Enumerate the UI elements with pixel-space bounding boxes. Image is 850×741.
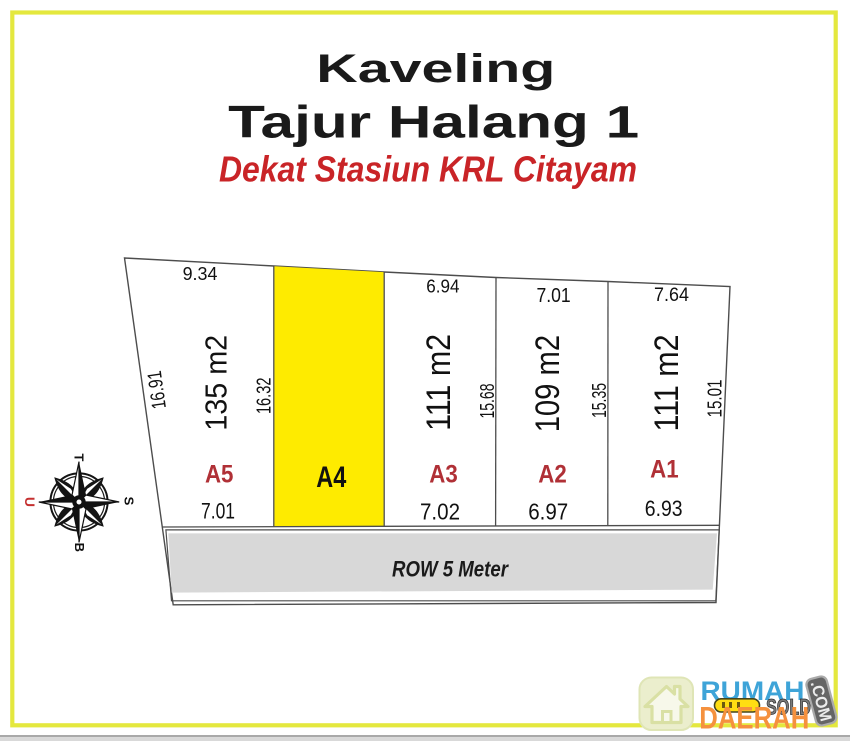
svg-text:ROW 5 Meter: ROW 5 Meter <box>392 557 509 582</box>
svg-text:Dekat Stasiun KRL Citayam: Dekat Stasiun KRL Citayam <box>219 148 637 189</box>
svg-text:109 m2: 109 m2 <box>529 335 567 432</box>
svg-text:U: U <box>22 497 38 507</box>
svg-text:15.01: 15.01 <box>705 380 727 418</box>
svg-text:A1: A1 <box>650 456 679 484</box>
svg-text:9.34: 9.34 <box>183 264 218 284</box>
svg-text:15.35: 15.35 <box>589 383 611 418</box>
svg-text:111 m2: 111 m2 <box>420 334 458 431</box>
svg-text:A3: A3 <box>429 460 458 488</box>
svg-text:A5: A5 <box>205 460 234 488</box>
svg-text:16.32: 16.32 <box>253 378 276 415</box>
svg-text:B: B <box>72 543 87 552</box>
svg-text:7.02: 7.02 <box>420 499 460 525</box>
svg-text:Kaveling: Kaveling <box>316 47 555 91</box>
svg-text:7.01: 7.01 <box>201 499 235 524</box>
svg-text:S: S <box>122 497 137 506</box>
svg-text:A2: A2 <box>538 460 567 488</box>
svg-text:7.01: 7.01 <box>537 285 571 307</box>
svg-text:135 m2: 135 m2 <box>199 335 234 431</box>
svg-text:A4: A4 <box>316 461 346 494</box>
svg-text:DAERAH: DAERAH <box>699 700 809 736</box>
svg-text:6.93: 6.93 <box>645 496 683 521</box>
svg-text:6.94: 6.94 <box>426 275 459 296</box>
svg-text:Tajur Halang 1: Tajur Halang 1 <box>228 97 639 148</box>
svg-text:111 m2: 111 m2 <box>648 335 686 432</box>
svg-text:7.64: 7.64 <box>654 285 689 306</box>
svg-text:T: T <box>72 454 87 462</box>
svg-text:6.97: 6.97 <box>528 499 568 525</box>
svg-text:15.68: 15.68 <box>477 384 499 419</box>
